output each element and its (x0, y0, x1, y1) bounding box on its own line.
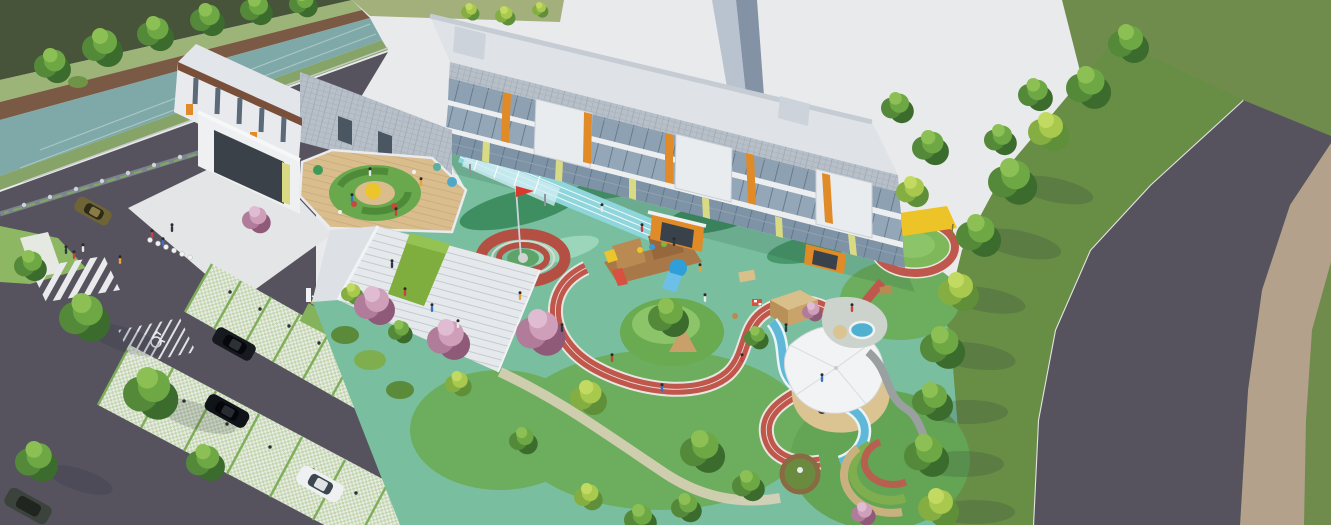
scene-svg (0, 0, 1331, 525)
splash-pool (850, 322, 874, 338)
green-parasol (313, 165, 323, 175)
gable-window (338, 116, 352, 145)
yellow-canopy-table (365, 183, 381, 199)
blue-parasol (447, 177, 457, 187)
aerial-render-canvas (0, 0, 1331, 525)
gate-pillar (306, 288, 311, 302)
round-planter (782, 456, 818, 492)
